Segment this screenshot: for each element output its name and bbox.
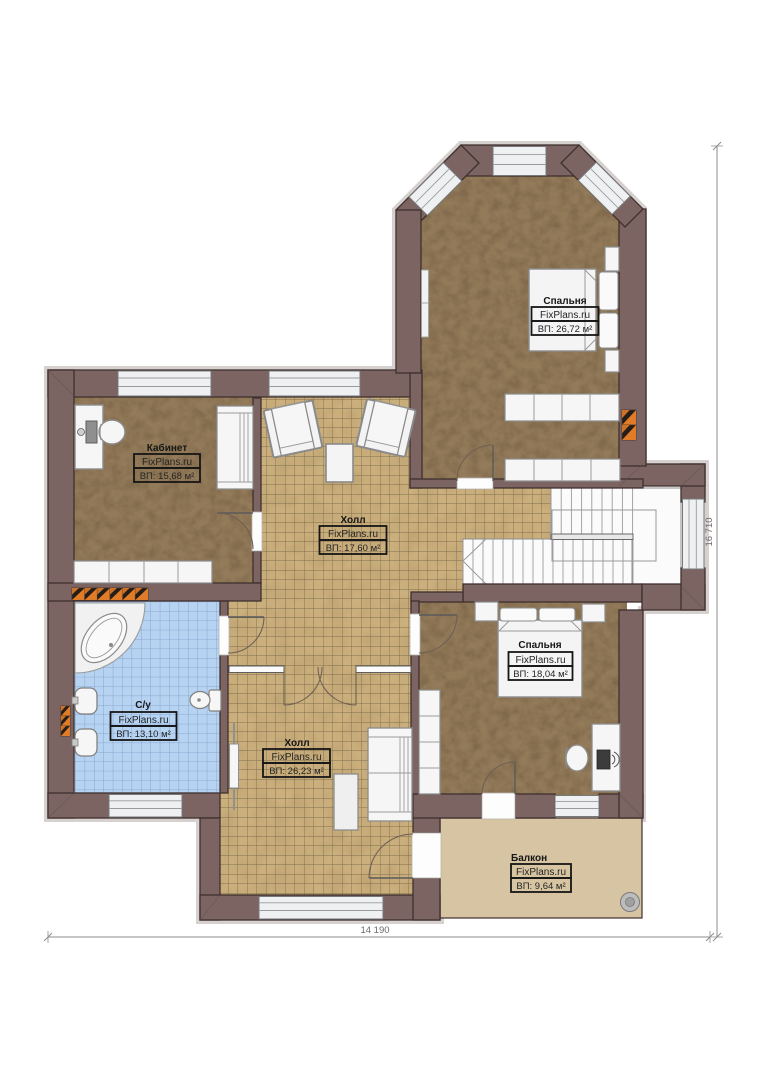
svg-text:Спальня: Спальня: [518, 640, 561, 651]
svg-text:14 190: 14 190: [360, 925, 389, 936]
svg-text:Холл: Холл: [340, 515, 365, 526]
svg-text:Спальня: Спальня: [543, 296, 586, 307]
svg-text:Балкон: Балкон: [511, 853, 547, 864]
svg-text:ВП: 26,72 м²: ВП: 26,72 м²: [538, 324, 593, 335]
svg-text:FixPlans.ru: FixPlans.ru: [515, 655, 565, 666]
svg-text:FixPlans.ru: FixPlans.ru: [142, 457, 192, 468]
svg-text:FixPlans.ru: FixPlans.ru: [516, 867, 566, 878]
svg-text:ВП: 18,04 м²: ВП: 18,04 м²: [513, 669, 568, 680]
svg-text:FixPlans.ru: FixPlans.ru: [540, 310, 590, 321]
svg-text:16 710: 16 710: [704, 517, 715, 546]
svg-text:Кабинет: Кабинет: [147, 442, 188, 454]
svg-text:FixPlans.ru: FixPlans.ru: [118, 715, 168, 726]
svg-text:Холл: Холл: [284, 738, 309, 749]
svg-text:ВП: 26,23 м²: ВП: 26,23 м²: [269, 766, 324, 777]
svg-text:FixPlans.ru: FixPlans.ru: [328, 529, 378, 540]
svg-text:ВП: 15,68 м²: ВП: 15,68 м²: [140, 471, 195, 482]
svg-text:ВП: 9,64 м²: ВП: 9,64 м²: [516, 881, 565, 892]
svg-text:FixPlans.ru: FixPlans.ru: [271, 752, 321, 763]
svg-text:ВП: 13,10 м²: ВП: 13,10 м²: [116, 729, 171, 740]
svg-text:С/у: С/у: [135, 700, 151, 711]
svg-text:ВП: 17,60 м²: ВП: 17,60 м²: [326, 543, 381, 554]
